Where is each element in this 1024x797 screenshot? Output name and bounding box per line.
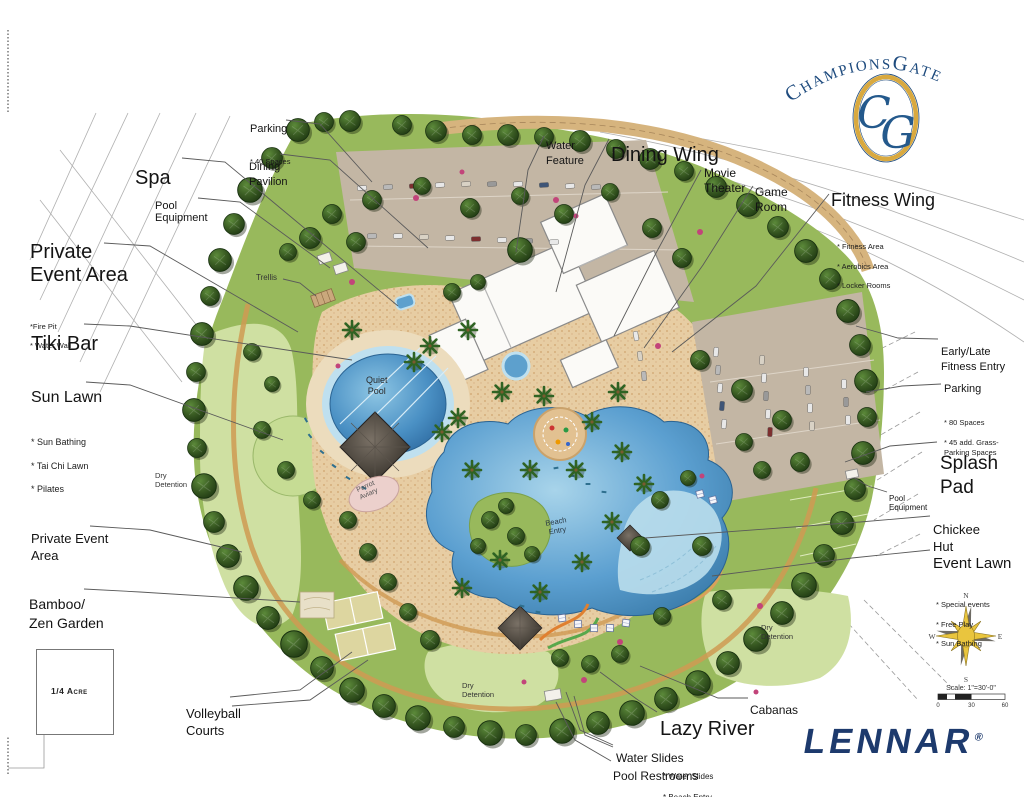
callout-dining-pavilion: Dining Pavilion [249,145,288,190]
label-spa: Spa [135,168,171,190]
callout-sun-lawn: Sun Lawn * Sun Bathing * Tai Chi Lawn * … [31,372,102,508]
label-splash-pad: Splash Pad [940,452,998,500]
cg-monogram: C G [853,74,919,162]
maplabel-dry-detention-west: Dry Detention [155,471,187,489]
label-sun-lawn: Sun Lawn [31,389,102,406]
callout-water-feature: Water Feature [546,125,584,168]
site-plan-illustration: CHAMPIONSGATE C G [0,0,1024,797]
plot-stamp-microtext-top [7,28,9,112]
label-early-late: Early/Late Fitness Entry [941,345,1005,374]
label-volleyball-courts: Volleyball Courts [186,706,241,739]
scale-bar: Scale: 1"=30'-0" 0 30 60 [936,685,1009,709]
label-bamboo-zen: Bamboo/ Zen Garden [29,595,104,633]
label-tiki-bar: Tiki Bar [31,334,98,356]
callout-early-late-fitness-entry: Early/Late Fitness Entry [941,331,1005,374]
label-movie-theater: Movie Theater [704,166,745,197]
callout-cabanas: Cabanas [750,691,798,717]
label-pool-equipment-right: Pool Equipment [889,494,927,513]
label-event-lawn: Event Lawn [933,556,1011,572]
callout-pool-equipment-left: Pool Equipment [155,189,208,225]
scale-tick-60: 60 [1002,703,1009,709]
label-parking-east: Parking [944,384,999,396]
label-dining-pavilion: Dining Pavilion [249,160,288,190]
logo-arc-c2: G [891,50,911,76]
scale-label: Scale: 1"=30'-0" [946,685,996,692]
callout-volleyball-courts: Volleyball Courts [186,690,241,739]
callout-private-event-area-south: Private Event Area [31,514,108,565]
maplabel-dry-detention-east: Dry Detention [761,623,793,641]
lennar-wordmark: LENNAR [801,722,978,761]
maplabel-beach-entry: Beach Entry [545,515,569,536]
monogram-g: G [880,108,915,159]
callout-tiki-bar: Tiki Bar [31,312,98,355]
maplabel-trellis: Trellis [256,273,277,283]
lennar-logo: LENNAR® [800,722,985,762]
label-water-feature: Water Feature [546,139,584,168]
label-pool-restrooms: Pool Restrooms [613,770,698,783]
quarter-acre-reference-box: 1/4 Acre [36,649,114,735]
callout-movie-theater: Movie Theater [704,150,745,197]
plot-stamp-microtext-bottom [7,736,9,774]
label-private-event-south: Private Event Area [31,531,108,565]
zen-garden-area [300,592,334,618]
splash-playground [534,408,586,460]
compass-s: S [964,675,968,684]
callout-pool-restrooms: Pool Restrooms [613,757,698,783]
quarter-acre-label: 1/4 Acre [51,686,88,696]
callout-spa: Spa [135,146,171,189]
site-plan-page: CHAMPIONSGATE C G [0,0,1024,797]
label-cabanas: Cabanas [750,704,798,717]
label-dining-wing: Dining Wing [611,145,719,167]
maplabel-dry-detention-south: Dry Detention [462,681,494,699]
championsgate-logo: CHAMPIONSGATE C G [780,50,982,162]
scale-tick-0: 0 [936,703,940,709]
scale-tick-30: 30 [968,703,975,709]
label-parking-north: Parking [250,124,290,136]
callout-game-room: Game Room [755,169,788,216]
label-private-event-north: Private Event Area [30,241,128,287]
maplabel-quiet-pool: Quiet Pool [366,375,388,397]
label-game-room: Game Room [755,185,788,216]
callout-pool-equipment-right: Pool Equipment [889,484,927,513]
callout-dining-wing: Dining Wing [611,123,719,166]
label-lazy-river: Lazy River [660,719,754,741]
callout-splash-pad: Splash Pad [940,428,998,499]
label-pool-equipment-left: Pool Equipment [155,201,208,225]
callout-event-lawn: Event Lawn * Special events * Free Play … [933,540,1011,659]
callout-bamboo-zen-garden: Bamboo/ Zen Garden [29,576,104,633]
callout-fitness-wing: Fitness Wing * Fitness Area * Aerobics A… [831,172,935,301]
label-fitness-wing: Fitness Wing [831,191,935,210]
plaza-fountain [503,353,529,379]
